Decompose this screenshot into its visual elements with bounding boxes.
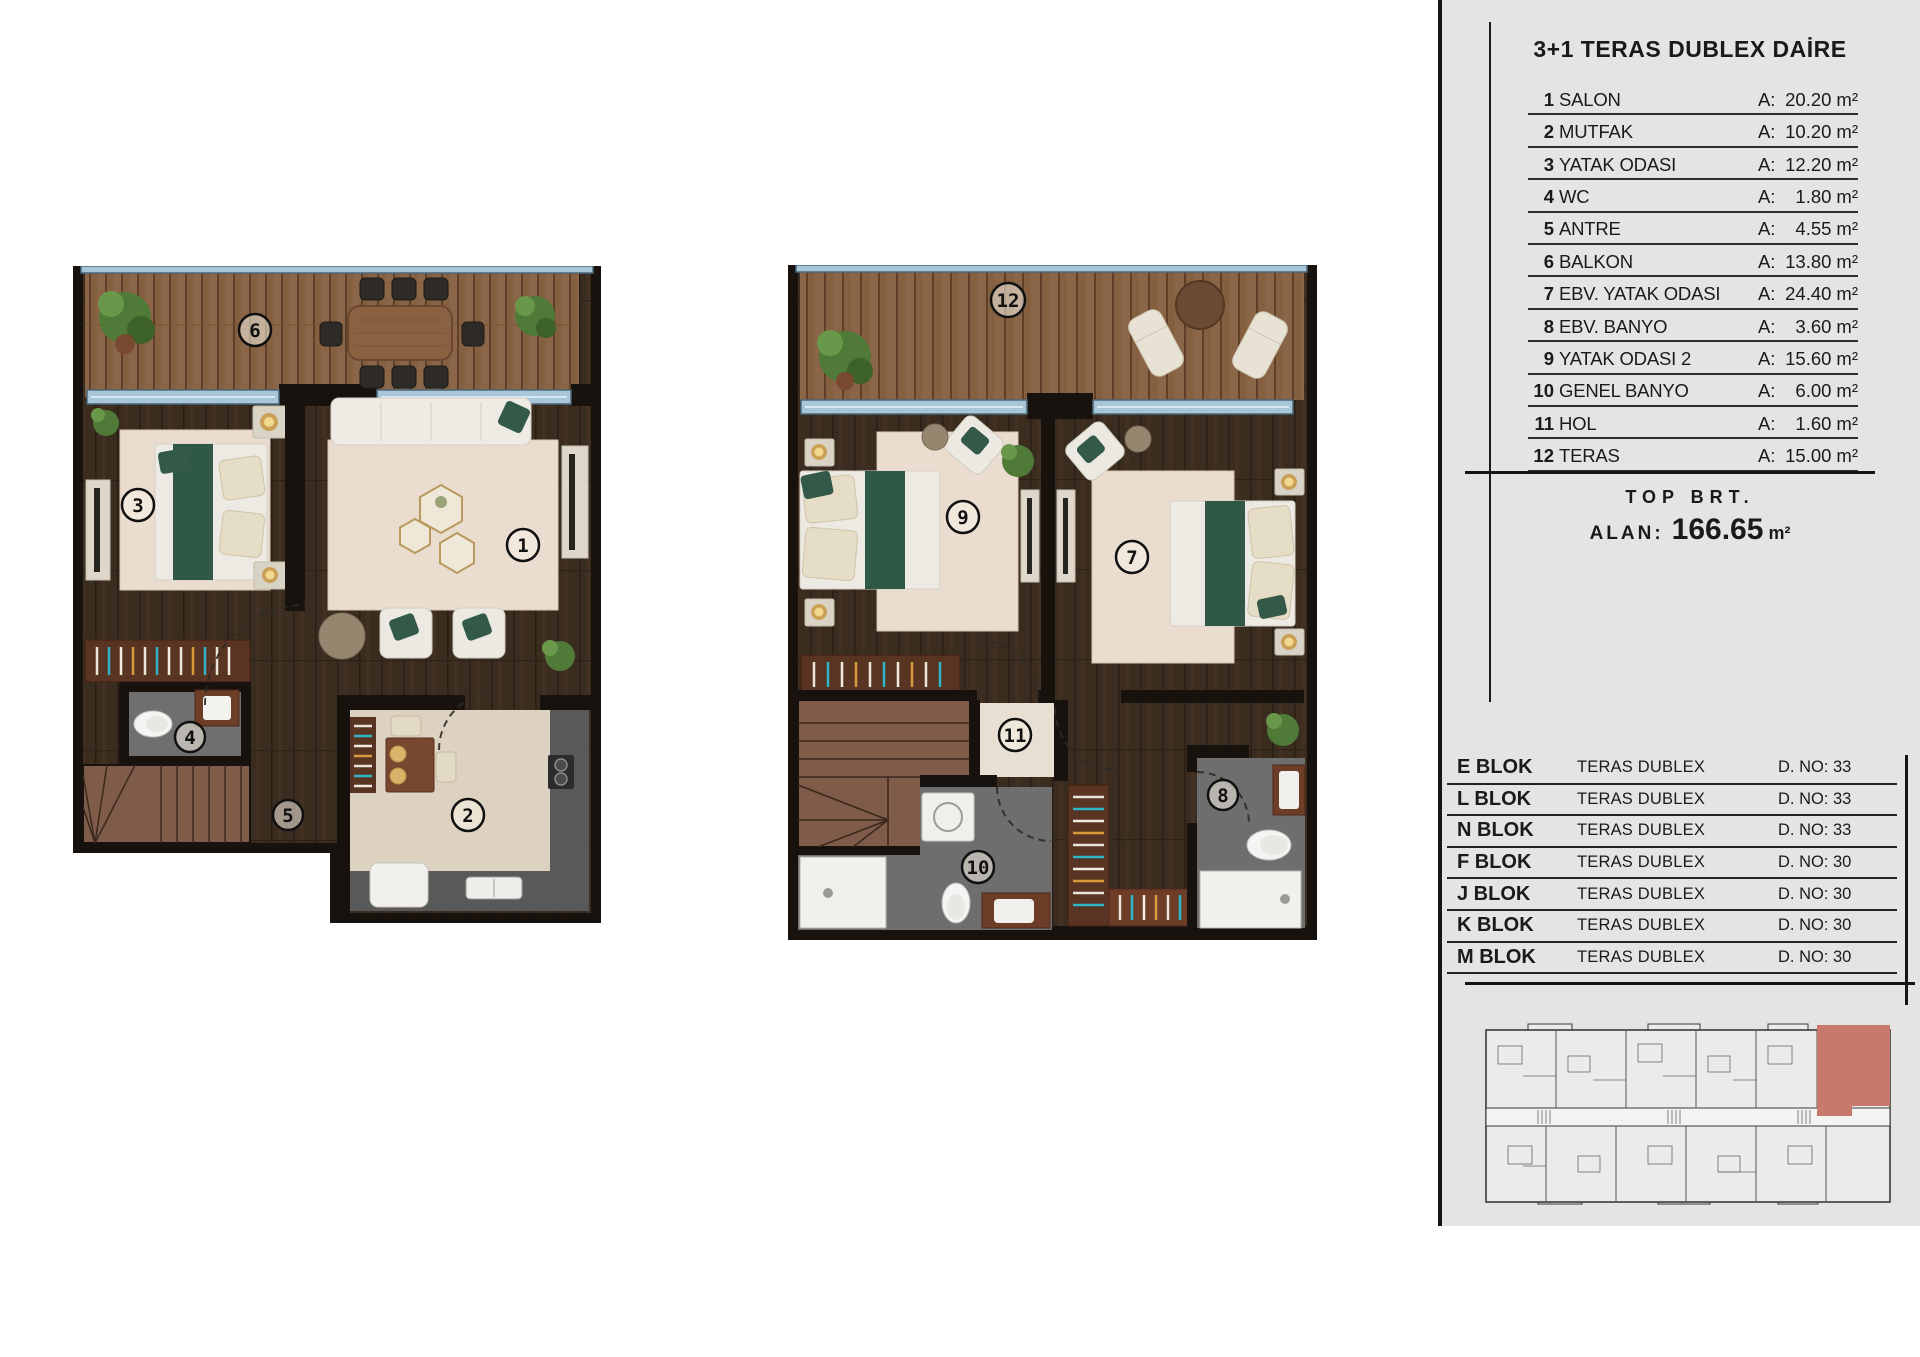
room-name: HOL bbox=[1559, 415, 1758, 434]
alan-label: ALAN: bbox=[1590, 523, 1672, 545]
area-prefix: A: bbox=[1758, 123, 1781, 142]
room-name: EBV. BANYO bbox=[1559, 318, 1758, 337]
area-prefix: A: bbox=[1758, 188, 1781, 207]
svg-text:6: 6 bbox=[249, 320, 260, 342]
block-row: N BLOK TERAS DUBLEX D. NO: 33 bbox=[1447, 816, 1897, 848]
highlighted-unit bbox=[1817, 1025, 1890, 1116]
area-value: 6.00 bbox=[1781, 382, 1831, 401]
room-name: MUTFAK bbox=[1559, 123, 1758, 142]
block-row: L BLOK TERAS DUBLEX D. NO: 33 bbox=[1447, 785, 1897, 817]
room-marker-genel-banyo: 10 bbox=[962, 851, 994, 883]
block-name: F BLOK bbox=[1447, 851, 1577, 874]
room-row: 9 YATAK ODASI 2 A: 15.60 m² bbox=[1528, 342, 1858, 374]
svg-text:12: 12 bbox=[997, 290, 1020, 312]
svg-text:11: 11 bbox=[1004, 725, 1027, 747]
block-door-number: D. NO: 30 bbox=[1778, 853, 1897, 872]
room-marker-hol: 11 bbox=[999, 719, 1031, 751]
room-row: 5 ANTRE A: 4.55 m² bbox=[1528, 213, 1858, 245]
room-row: 8 EBV. BANYO A: 3.60 m² bbox=[1528, 310, 1858, 342]
floor-plan-lower: 6 3 1 4 5 2 bbox=[73, 266, 601, 923]
area-value: 10.20 bbox=[1781, 123, 1831, 142]
block-name: K BLOK bbox=[1447, 914, 1577, 937]
svg-text:3: 3 bbox=[132, 495, 143, 517]
area-unit: m² bbox=[1831, 220, 1858, 239]
bed bbox=[800, 470, 940, 589]
room-number: 8 bbox=[1528, 318, 1559, 337]
block-row: J BLOK TERAS DUBLEX D. NO: 30 bbox=[1447, 879, 1897, 911]
room-row: 7 EBV. YATAK ODASI A: 24.40 m² bbox=[1528, 277, 1858, 309]
panel-divider-top bbox=[1465, 471, 1875, 474]
page-title: 3+1 TERAS DUBLEX DAİRE bbox=[1500, 36, 1880, 63]
room-row: 12 TERAS A: 15.00 m² bbox=[1528, 439, 1858, 471]
room-marker-antre: 5 bbox=[273, 800, 303, 830]
room-number: 7 bbox=[1528, 285, 1559, 304]
block-name: J BLOK bbox=[1447, 883, 1577, 906]
block-unit-type: TERAS DUBLEX bbox=[1577, 853, 1778, 872]
area-prefix: A: bbox=[1758, 156, 1781, 175]
armchair bbox=[380, 608, 432, 658]
side-table bbox=[319, 613, 365, 659]
room-area: A: 15.60 m² bbox=[1758, 350, 1858, 369]
room-name: BALKON bbox=[1559, 253, 1758, 272]
block-name: L BLOK bbox=[1447, 788, 1577, 811]
area-prefix: A: bbox=[1758, 447, 1781, 466]
room-area: A: 13.80 m² bbox=[1758, 253, 1858, 272]
room-row: 11 HOL A: 1.60 m² bbox=[1528, 407, 1858, 439]
total-area-block: TOP BRT. ALAN: 166.65 m² bbox=[1500, 487, 1880, 547]
room-area: A: 10.20 m² bbox=[1758, 123, 1858, 142]
block-door-number: D. NO: 33 bbox=[1778, 790, 1897, 809]
area-value: 20.20 bbox=[1781, 91, 1831, 110]
area-prefix: A: bbox=[1758, 220, 1781, 239]
room-name: YATAK ODASI bbox=[1559, 156, 1758, 175]
room-area: A: 4.55 m² bbox=[1758, 220, 1858, 239]
room-number: 6 bbox=[1528, 253, 1559, 272]
panel-inner-line bbox=[1489, 22, 1491, 702]
block-name: N BLOK bbox=[1447, 819, 1577, 842]
room-list: 1 SALON A: 20.20 m² 2 MUTFAK A: 10.20 m²… bbox=[1528, 83, 1858, 472]
teras-deck bbox=[800, 270, 1304, 400]
block-name: M BLOK bbox=[1447, 946, 1577, 969]
block-unit-type: TERAS DUBLEX bbox=[1577, 948, 1778, 967]
block-door-number: D. NO: 30 bbox=[1778, 916, 1897, 935]
room-area: A: 24.40 m² bbox=[1758, 285, 1858, 304]
dresser bbox=[801, 655, 960, 694]
panel-divider-bottom bbox=[1465, 982, 1915, 985]
bed bbox=[155, 444, 267, 580]
room-number: 9 bbox=[1528, 350, 1559, 369]
area-value: 15.60 bbox=[1781, 350, 1831, 369]
area-value: 1.80 bbox=[1781, 188, 1831, 207]
room-area: A: 1.80 m² bbox=[1758, 188, 1858, 207]
wall-lamp bbox=[1275, 629, 1304, 655]
room-marker-salon: 1 bbox=[507, 529, 539, 561]
area-value: 24.40 bbox=[1781, 285, 1831, 304]
room-marker-yatak-odasi-2: 9 bbox=[947, 501, 979, 533]
area-unit: m² bbox=[1831, 415, 1858, 434]
area-prefix: A: bbox=[1758, 285, 1781, 304]
area-value: 13.80 bbox=[1781, 253, 1831, 272]
area-prefix: A: bbox=[1758, 350, 1781, 369]
room-marker-ebv-banyo: 8 bbox=[1208, 780, 1238, 810]
wall-lamp bbox=[253, 406, 286, 438]
room-name: EBV. YATAK ODASI bbox=[1559, 285, 1758, 304]
area-prefix: A: bbox=[1758, 253, 1781, 272]
block-row: F BLOK TERAS DUBLEX D. NO: 30 bbox=[1447, 848, 1897, 880]
wall-lamp bbox=[805, 439, 834, 466]
teras-table bbox=[1176, 281, 1224, 329]
area-unit: m² bbox=[1831, 382, 1858, 401]
room-marker-balkon: 6 bbox=[239, 314, 271, 346]
block-row: K BLOK TERAS DUBLEX D. NO: 30 bbox=[1447, 911, 1897, 943]
wall-lamp bbox=[1275, 469, 1304, 495]
room-marker-yatak-odasi: 3 bbox=[122, 489, 154, 521]
svg-text:5: 5 bbox=[282, 805, 293, 827]
room-marker-wc: 4 bbox=[175, 722, 205, 752]
floor-plan-upper: 12 9 7 11 10 8 bbox=[788, 265, 1317, 940]
room-name: SALON bbox=[1559, 91, 1758, 110]
total-label: TOP BRT. bbox=[1500, 487, 1880, 508]
block-unit-type: TERAS DUBLEX bbox=[1577, 758, 1778, 777]
wall-lamp bbox=[805, 599, 834, 626]
room-row: 10 GENEL BANYO A: 6.00 m² bbox=[1528, 375, 1858, 407]
room-area: A: 12.20 m² bbox=[1758, 156, 1858, 175]
svg-text:7: 7 bbox=[1126, 547, 1137, 569]
armchair bbox=[453, 608, 505, 658]
area-value: 12.20 bbox=[1781, 156, 1831, 175]
room-row: 1 SALON A: 20.20 m² bbox=[1528, 83, 1858, 115]
room-number: 5 bbox=[1528, 220, 1559, 239]
area-value: 4.55 bbox=[1781, 220, 1831, 239]
side-table bbox=[1125, 426, 1151, 452]
room-row: 4 WC A: 1.80 m² bbox=[1528, 180, 1858, 212]
block-row: M BLOK TERAS DUBLEX D. NO: 30 bbox=[1447, 943, 1897, 975]
block-unit-type: TERAS DUBLEX bbox=[1577, 790, 1778, 809]
room-number: 12 bbox=[1528, 447, 1559, 466]
area-unit: m² bbox=[1831, 91, 1858, 110]
area-value: 15.00 bbox=[1781, 447, 1831, 466]
room-number: 11 bbox=[1528, 415, 1559, 434]
svg-text:9: 9 bbox=[957, 507, 968, 529]
area-unit: m² bbox=[1831, 253, 1858, 272]
panel-right-line bbox=[1905, 755, 1908, 1005]
room-number: 4 bbox=[1528, 188, 1559, 207]
block-name: E BLOK bbox=[1447, 756, 1577, 779]
area-prefix: A: bbox=[1758, 318, 1781, 337]
area-unit: m² bbox=[1831, 318, 1858, 337]
block-table: E BLOK TERAS DUBLEX D. NO: 33 L BLOK TER… bbox=[1447, 753, 1897, 974]
area-value: 1.60 bbox=[1781, 415, 1831, 434]
wall-lamp bbox=[254, 562, 287, 589]
balcony-railing bbox=[81, 266, 593, 273]
side-table bbox=[922, 424, 948, 450]
stairs bbox=[83, 765, 250, 843]
room-marker-ebv-yatak-odasi: 7 bbox=[1116, 541, 1148, 573]
room-area: A: 3.60 m² bbox=[1758, 318, 1858, 337]
teras-railing bbox=[796, 265, 1307, 272]
total-area-value: 166.65 bbox=[1672, 513, 1764, 547]
room-name: ANTRE bbox=[1559, 220, 1758, 239]
room-area: A: 1.60 m² bbox=[1758, 415, 1858, 434]
room-name: WC bbox=[1559, 188, 1758, 207]
room-row: 2 MUTFAK A: 10.20 m² bbox=[1528, 115, 1858, 147]
area-unit: m² bbox=[1831, 156, 1858, 175]
block-door-number: D. NO: 33 bbox=[1778, 821, 1897, 840]
area-unit: m² bbox=[1831, 350, 1858, 369]
block-door-number: D. NO: 33 bbox=[1778, 758, 1897, 777]
block-door-number: D. NO: 30 bbox=[1778, 885, 1897, 904]
room-number: 3 bbox=[1528, 156, 1559, 175]
area-unit: m² bbox=[1831, 447, 1858, 466]
sofa bbox=[331, 398, 531, 445]
block-row: E BLOK TERAS DUBLEX D. NO: 33 bbox=[1447, 753, 1897, 785]
svg-text:10: 10 bbox=[967, 857, 990, 879]
room-area: A: 6.00 m² bbox=[1758, 382, 1858, 401]
area-unit: m² bbox=[1831, 285, 1858, 304]
room-marker-mutfak: 2 bbox=[452, 799, 484, 831]
ebv-banyo-room bbox=[1187, 745, 1305, 930]
svg-text:8: 8 bbox=[1217, 785, 1228, 807]
room-row: 6 BALKON A: 13.80 m² bbox=[1528, 245, 1858, 277]
block-unit-type: TERAS DUBLEX bbox=[1577, 821, 1778, 840]
area-value: 3.60 bbox=[1781, 318, 1831, 337]
tv-unit bbox=[562, 446, 588, 558]
room-area: A: 15.00 m² bbox=[1758, 447, 1858, 466]
area-prefix: A: bbox=[1758, 91, 1781, 110]
svg-text:2: 2 bbox=[462, 805, 473, 827]
room-row: 3 YATAK ODASI A: 12.20 m² bbox=[1528, 148, 1858, 180]
area-unit: m² bbox=[1831, 188, 1858, 207]
block-unit-type: TERAS DUBLEX bbox=[1577, 916, 1778, 935]
room-number: 10 bbox=[1528, 382, 1559, 401]
room-name: TERAS bbox=[1559, 447, 1758, 466]
tv-unit bbox=[1057, 490, 1075, 582]
block-door-number: D. NO: 30 bbox=[1778, 948, 1897, 967]
area-prefix: A: bbox=[1758, 415, 1781, 434]
tv-unit bbox=[1021, 490, 1039, 582]
svg-text:4: 4 bbox=[184, 727, 195, 749]
room-number: 2 bbox=[1528, 123, 1559, 142]
svg-text:1: 1 bbox=[517, 535, 528, 557]
total-area-unit: m² bbox=[1763, 523, 1790, 544]
room-name: GENEL BANYO bbox=[1559, 382, 1758, 401]
block-unit-type: TERAS DUBLEX bbox=[1577, 885, 1778, 904]
bed bbox=[1170, 501, 1295, 626]
room-area: A: 20.20 m² bbox=[1758, 91, 1858, 110]
area-prefix: A: bbox=[1758, 382, 1781, 401]
room-marker-teras: 12 bbox=[991, 283, 1025, 317]
room-number: 1 bbox=[1528, 91, 1559, 110]
floorplan-brochure-page: { "panel": { "title": "3+1 TERAS DUBLEX … bbox=[0, 0, 1920, 1357]
building-key-plan bbox=[1468, 1016, 1898, 1212]
area-unit: m² bbox=[1831, 123, 1858, 142]
tv-unit bbox=[86, 480, 110, 580]
room-name: YATAK ODASI 2 bbox=[1559, 350, 1758, 369]
